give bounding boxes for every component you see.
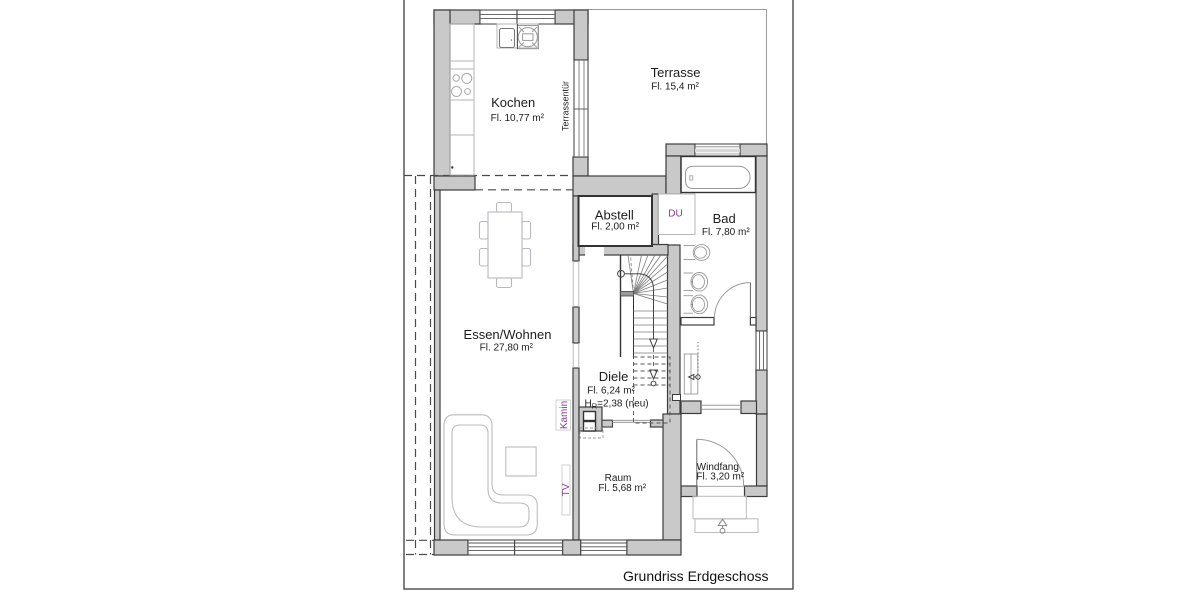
- svg-text:Bad: Bad: [713, 211, 736, 226]
- svg-text:Kamin: Kamin: [559, 401, 570, 429]
- svg-text:Fl. 27,80 m²: Fl. 27,80 m²: [480, 343, 534, 354]
- svg-text:Terrasse: Terrasse: [651, 65, 701, 80]
- svg-text:Kochen: Kochen: [491, 95, 535, 110]
- svg-text:Essen/Wohnen: Essen/Wohnen: [464, 327, 552, 342]
- svg-text:Terrassentür: Terrassentür: [561, 81, 571, 131]
- svg-text:Fl. 10,77 m²: Fl. 10,77 m²: [491, 113, 545, 124]
- svg-text:Abstell: Abstell: [595, 207, 634, 222]
- svg-text:Fl. 2,00 m²: Fl. 2,00 m²: [591, 222, 639, 233]
- svg-text:Grundriss Erdgeschoss: Grundriss Erdgeschoss: [623, 568, 769, 584]
- svg-text:Fl. 6,24 m²: Fl. 6,24 m²: [587, 385, 635, 396]
- svg-text:Fl. 15,4 m²: Fl. 15,4 m²: [651, 81, 699, 92]
- svg-text:Fl. 5,68 m²: Fl. 5,68 m²: [598, 483, 646, 494]
- svg-text:Fl. 3,20 m²: Fl. 3,20 m²: [696, 472, 744, 483]
- svg-text:TV: TV: [561, 483, 572, 496]
- svg-text:DU: DU: [668, 209, 682, 220]
- svg-text:Fl. 7,80 m²: Fl. 7,80 m²: [702, 227, 750, 238]
- svg-text:Diele: Diele: [599, 369, 629, 384]
